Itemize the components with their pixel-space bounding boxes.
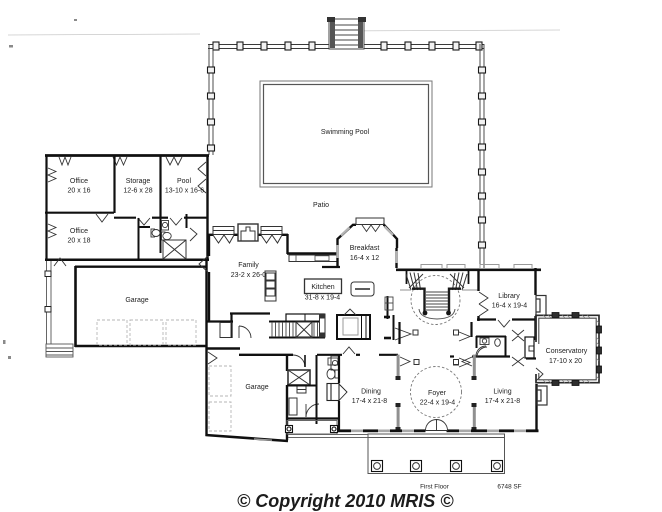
svg-text:6748 SF: 6748 SF xyxy=(497,484,521,491)
svg-text:Foyer: Foyer xyxy=(428,390,447,397)
svg-text:First Floor: First Floor xyxy=(420,484,450,491)
svg-text:16-4 x 19-4: 16-4 x 19-4 xyxy=(492,303,528,310)
svg-text:Breakfast: Breakfast xyxy=(350,245,380,252)
svg-text:17-4 x 21-8: 17-4 x 21-8 xyxy=(485,398,521,405)
svg-text:Office: Office xyxy=(70,178,88,185)
svg-text:Garage: Garage xyxy=(245,384,268,391)
svg-text:Living: Living xyxy=(493,389,511,396)
svg-text:Kitchen: Kitchen xyxy=(311,284,334,291)
svg-text:17-10 x 20: 17-10 x 20 xyxy=(549,358,582,365)
svg-text:Patio: Patio xyxy=(313,202,329,209)
svg-text:Garage: Garage xyxy=(125,297,148,304)
svg-text:23-2 x 26-0: 23-2 x 26-0 xyxy=(231,272,267,279)
svg-text:Storage: Storage xyxy=(126,178,151,185)
svg-text:17-4 x 21-8: 17-4 x 21-8 xyxy=(352,398,388,405)
svg-text:Dining: Dining xyxy=(361,389,381,396)
svg-text:16-4 x 12: 16-4 x 12 xyxy=(350,255,379,262)
svg-text:20 x 16: 20 x 16 xyxy=(68,188,91,195)
svg-text:© Copyright 2010 MRIS ©: © Copyright 2010 MRIS © xyxy=(237,491,454,511)
svg-text:13-10 x 16-6: 13-10 x 16-6 xyxy=(165,188,204,195)
svg-text:22-4 x 19-4: 22-4 x 19-4 xyxy=(420,400,456,407)
svg-text:Library: Library xyxy=(498,293,520,300)
svg-text:12-6 x 28: 12-6 x 28 xyxy=(123,188,152,195)
svg-text:Swimming Pool: Swimming Pool xyxy=(321,129,370,136)
svg-text:Conservatory: Conservatory xyxy=(546,348,588,355)
svg-text:31-8 x 19-4: 31-8 x 19-4 xyxy=(305,295,341,302)
svg-text:Pool: Pool xyxy=(177,178,191,185)
svg-text:20 x 18: 20 x 18 xyxy=(68,238,91,245)
svg-text:Office: Office xyxy=(70,228,88,235)
svg-text:Family: Family xyxy=(238,262,259,269)
